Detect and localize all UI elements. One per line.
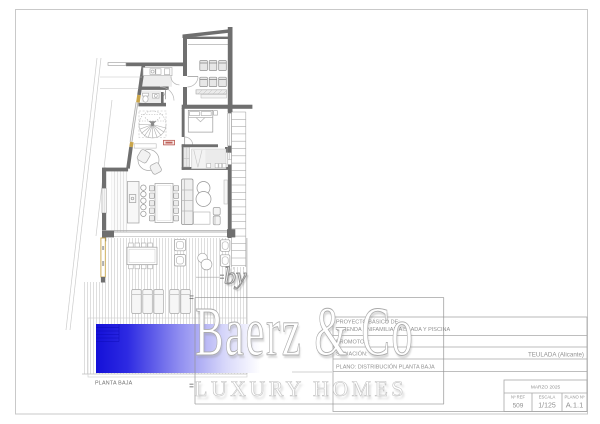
svg-text:A.1.1: A.1.1 bbox=[566, 401, 584, 410]
svg-text:PLANTA BAJA: PLANTA BAJA bbox=[95, 381, 133, 387]
svg-text:PLANO Nº: PLANO Nº bbox=[565, 395, 585, 400]
svg-text:MARZO 2025: MARZO 2025 bbox=[531, 385, 561, 391]
svg-text:1/125: 1/125 bbox=[538, 403, 556, 410]
svg-text:ESCALA: ESCALA bbox=[539, 395, 556, 400]
svg-text:TEULADA (Alicante): TEULADA (Alicante) bbox=[528, 352, 584, 359]
svg-text:Nº REF: Nº REF bbox=[511, 395, 526, 400]
svg-text:509: 509 bbox=[513, 403, 524, 410]
